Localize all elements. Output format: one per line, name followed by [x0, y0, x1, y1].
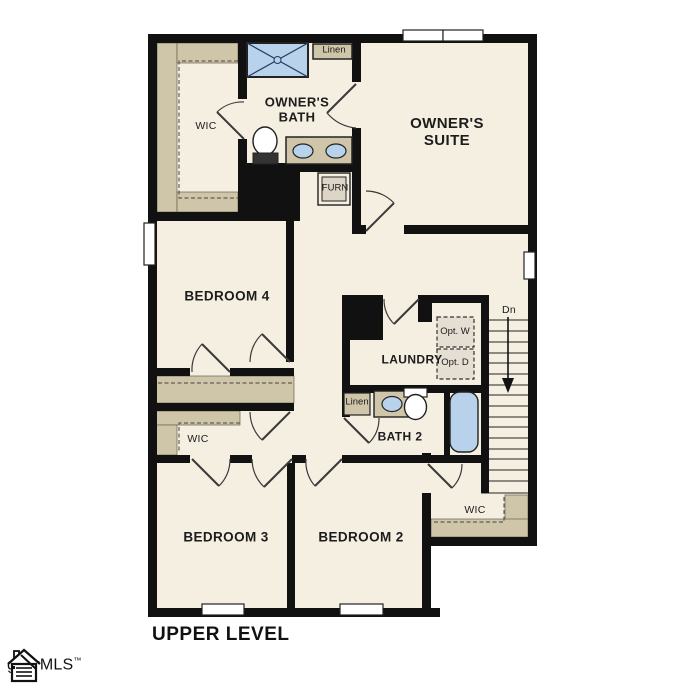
label-optional-dryer: Opt. D	[439, 357, 471, 369]
label-optional-washer: Opt. W	[439, 326, 471, 338]
double-vanity-icon	[286, 137, 352, 164]
level-title: UPPER LEVEL	[152, 624, 289, 646]
room-label-bedroom4: BEDROOM 4	[184, 288, 269, 303]
toilet-owner-icon	[253, 127, 278, 164]
toilet-bath2-icon	[404, 388, 427, 420]
shower-icon	[247, 43, 308, 77]
room-label-owners-suite: OWNER'S SUITE	[397, 116, 497, 150]
label-furnace: FURN	[322, 184, 348, 195]
room-label-bedroom2: BEDROOM 2	[318, 529, 403, 544]
mls-logo: ggarMLS™	[5, 645, 82, 685]
label-linen-owners-bath: Linen	[322, 46, 345, 57]
room-label-bath2: BATH 2	[378, 430, 423, 443]
room-label-wic-bedroom2: WIC	[464, 505, 485, 517]
room-label-laundry: LAUNDRY	[381, 353, 442, 366]
trademark-symbol: ™	[73, 656, 81, 665]
room-label-owners-bath: OWNER'S BATH	[251, 95, 343, 124]
label-stairs-down: Dn	[502, 305, 516, 317]
room-label-owner-wic: WIC	[195, 121, 216, 133]
bathtub-icon	[450, 392, 478, 452]
floor-plan: Linen OWNER'S BATH WIC OWNER'S SUITE FUR…	[0, 0, 687, 687]
floor-plan-drawing	[0, 0, 687, 687]
room-label-bedroom3: BEDROOM 3	[183, 529, 268, 544]
room-label-wic-bedroom3: WIC	[187, 434, 208, 446]
label-linen-bath2: Linen	[345, 398, 368, 409]
mls-house-icon	[5, 645, 43, 685]
